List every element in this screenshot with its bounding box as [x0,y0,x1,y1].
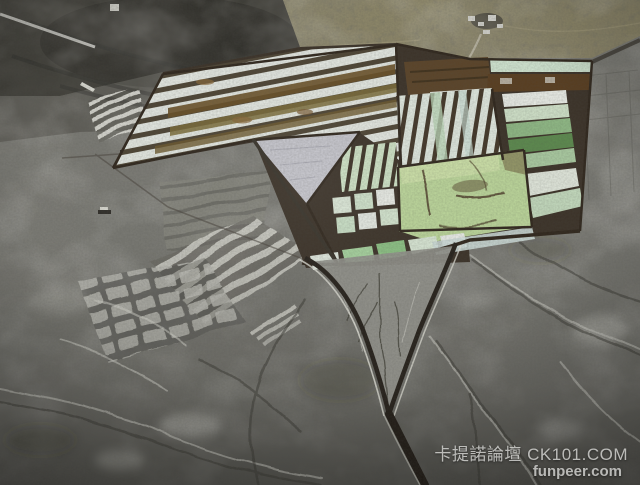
watermark-line1: 卡提諾論壇 CK101.COM [434,446,628,465]
photo-canvas [0,0,640,485]
film-grain [0,0,640,485]
aerial-photo: 卡提諾論壇 CK101.COM funpeer.com [0,0,640,485]
watermark-line2: funpeer.com [434,464,622,481]
watermark: 卡提諾論壇 CK101.COM funpeer.com [434,446,628,480]
